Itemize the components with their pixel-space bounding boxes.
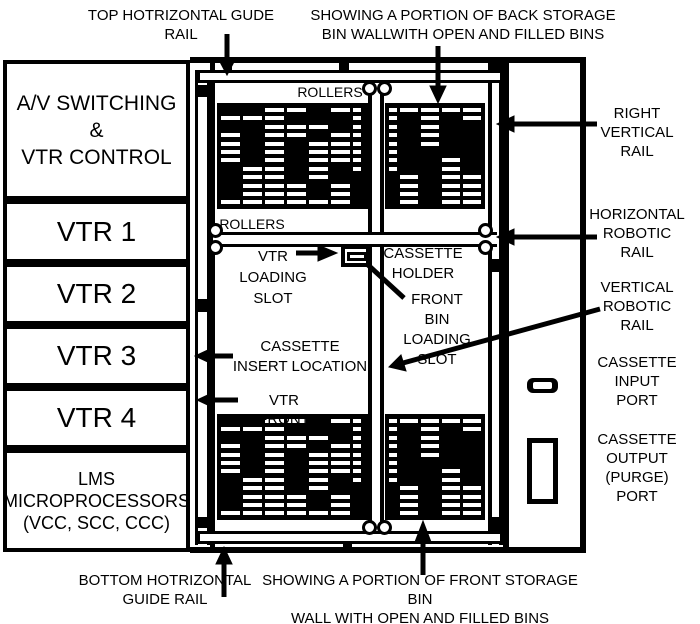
roller bbox=[208, 240, 223, 255]
equipment-rack: A/V SWITCHING & VTR CONTROL VTR 1 VTR 2 … bbox=[3, 60, 190, 552]
roller bbox=[377, 81, 392, 96]
label-vtr-front: VTR FRONT bbox=[243, 391, 325, 429]
box-lms-label: LMS MICROPROCESSORS (VCC, SCC, CCC) bbox=[3, 468, 190, 534]
box-av-switching-label: A/V SWITCHING & VTR CONTROL bbox=[17, 90, 177, 171]
rail-tab bbox=[489, 259, 502, 272]
box-vtr-3: VTR 3 bbox=[3, 325, 190, 387]
cassette-holder-slot bbox=[347, 252, 367, 261]
label-vertical-robotic-rail: VERTICAL ROBOTIC RAIL bbox=[582, 278, 692, 335]
box-vtr-2: VTR 2 bbox=[3, 263, 190, 325]
bottom-horizontal-guide-rail bbox=[197, 531, 503, 544]
front-bin-wall-left bbox=[217, 414, 368, 520]
cassette-input-port-slot bbox=[533, 382, 552, 389]
roller bbox=[377, 520, 392, 535]
box-vtr-2-label: VTR 2 bbox=[57, 278, 136, 310]
cassette-output-port-shape bbox=[527, 438, 558, 504]
back-bin-wall-left bbox=[217, 103, 368, 209]
box-vtr-1: VTR 1 bbox=[3, 200, 190, 263]
label-front-storage-bin-wall: SHOWING A PORTION OF FRONT STORAGE BIN W… bbox=[255, 571, 585, 624]
label-right-vertical-rail: RIGHT VERTICAL RAIL bbox=[582, 104, 692, 161]
label-cassette-input-port: CASSETTE INPUT PORT bbox=[582, 353, 692, 410]
inner-left-wall bbox=[210, 57, 215, 553]
box-vtr-3-label: VTR 3 bbox=[57, 340, 136, 372]
rail-tab bbox=[197, 299, 208, 312]
box-av-switching: A/V SWITCHING & VTR CONTROL bbox=[3, 60, 190, 200]
roller bbox=[362, 520, 377, 535]
label-rollers-mid: ROLLERS bbox=[216, 215, 288, 234]
label-top-horizontal-guide-rail: TOP HOTRIZONTAL GUDE RAIL bbox=[60, 6, 302, 44]
roller bbox=[478, 240, 493, 255]
label-back-storage-bin-wall: SHOWING A PORTION OF BACK STORAGE BIN WA… bbox=[310, 6, 616, 44]
label-horizontal-robotic-rail: HORIZONTAL ROBOTIC RAIL bbox=[582, 205, 692, 262]
rail-tab bbox=[197, 85, 208, 97]
vertical-robotic-rail bbox=[368, 82, 384, 532]
top-horizontal-guide-rail bbox=[197, 70, 503, 83]
roller bbox=[478, 223, 493, 238]
label-vtr-loading-slot: VTR LOADING SLOT bbox=[233, 246, 313, 309]
box-vtr-4-label: VTR 4 bbox=[57, 402, 136, 434]
label-cassette-output-port: CASSETTE OUTPUT (PURGE) PORT bbox=[582, 430, 692, 506]
rail-tab bbox=[489, 517, 502, 532]
label-cassette-insert-location: CASSETTE INSERT LOCATION bbox=[229, 337, 371, 377]
right-vertical-rail bbox=[488, 62, 503, 545]
label-rollers-top: ROLLERS bbox=[294, 83, 366, 102]
box-vtr-1-label: VTR 1 bbox=[57, 216, 136, 248]
box-lms-microprocessors: LMS MICROPROCESSORS (VCC, SCC, CCC) bbox=[3, 449, 190, 552]
front-bin-wall-right bbox=[385, 414, 485, 520]
label-front-bin-loading-slot: FRONT BIN LOADING SLOT bbox=[397, 290, 477, 370]
lms-robot-library-diagram: A/V SWITCHING & VTR CONTROL VTR 1 VTR 2 … bbox=[0, 0, 700, 624]
box-vtr-4: VTR 4 bbox=[3, 387, 190, 449]
back-bin-wall-right bbox=[385, 103, 485, 209]
label-bottom-horizontal-guide-rail: BOTTOM HOTRIZONTAL GUIDE RAIL bbox=[45, 571, 285, 609]
label-cassette-holder: CASSETTE HOLDER bbox=[383, 244, 463, 284]
rail-tab bbox=[197, 517, 208, 528]
